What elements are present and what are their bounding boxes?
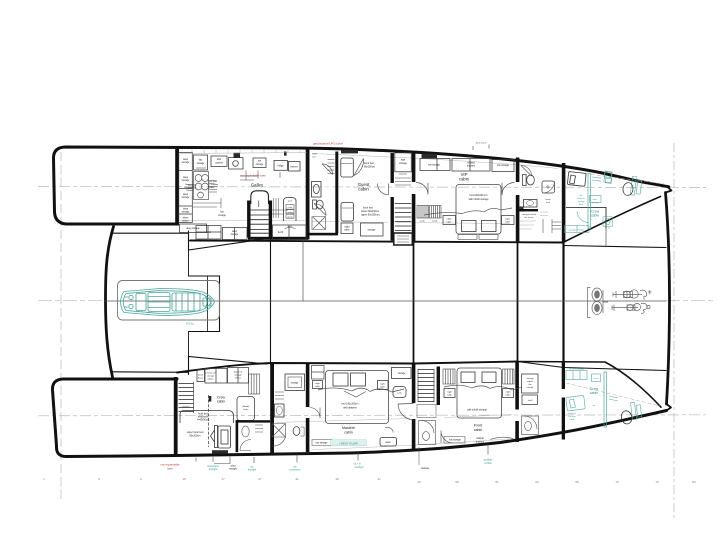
svg-text:wardr.: wardr. [432,220,438,223]
svg-text:storage: storage [256,163,264,166]
svg-text:table: table [447,221,453,224]
svg-text:27: 27 [258,477,262,481]
svg-text:storage behind: storage behind [522,213,537,216]
svg-text:mattress: mattress [577,197,586,200]
svg-text:storage: storage [291,382,299,385]
svg-text:56: 56 [575,480,579,484]
svg-text:seats: seats [243,408,249,411]
svg-text:berth: berth [206,231,212,234]
svg-text:43: 43 [417,480,421,484]
svg-text:washer/storage: washer/storage [569,367,585,370]
svg-text:rational: rational [476,437,484,440]
svg-text:deep: deep [183,194,189,196]
svg-text:towel: towel [545,198,551,201]
svg-text:table: table [506,394,512,397]
svg-text:headroom: headroom [198,416,208,419]
svg-text:drawers: drawers [476,440,485,443]
svg-text:deep: deep [232,231,238,233]
svg-text:night: night [447,391,452,394]
svg-text:table: table [345,229,351,232]
svg-text:low storage: low storage [316,442,328,445]
svg-text:deep: deep [183,177,189,179]
svg-text:instead: instead [467,162,475,165]
svg-text:Galley: Galley [251,183,264,188]
svg-text:storage: storage [182,196,190,199]
svg-text:high: high [401,160,406,162]
svg-text:41: 41 [295,477,299,481]
svg-text:chart: chart [594,377,599,380]
svg-text:washing: washing [188,185,197,187]
svg-text:51: 51 [495,480,499,484]
svg-text:shore: shore [183,217,189,220]
svg-text:storage: storage [182,161,190,164]
svg-text:headboard: headboard [498,440,509,443]
svg-text:unit: unit [312,156,316,159]
svg-text:overlight: overlight [354,466,363,469]
svg-text:storage: storage [577,200,585,203]
svg-text:58: 58 [455,480,459,484]
svg-text:inbuilt: inbuilt [527,380,533,383]
svg-text:storage: storage [197,162,205,165]
svg-text:power: power [182,220,188,223]
svg-text:deep storage: deep storage [186,227,200,230]
svg-text:upper 80x190cm): upper 80x190cm) [361,214,380,217]
svg-text:with drawers: with drawers [343,406,357,409]
svg-text:64: 64 [535,480,539,484]
svg-text:Front: Front [474,424,482,428]
svg-text:+HEAT PUMP: +HEAT PUMP [339,441,358,445]
svg-text:night: night [380,383,385,386]
svg-text:800 kg: 800 kg [186,322,194,326]
svg-text:cabin: cabin [569,419,575,421]
svg-text:mattress: mattress [568,412,577,415]
svg-text:machine: machine [188,188,197,190]
svg-text:cracker: cracker [215,162,223,165]
svg-text:non expandable: non expandable [160,463,180,467]
svg-text:90x200cm: 90x200cm [189,435,200,438]
svg-text:pantry: pantry [592,201,599,204]
svg-text:bed 160x200cm: bed 160x200cm [341,403,358,406]
svg-text:storage: storage [526,377,534,380]
svg-text:low storage: low storage [497,164,509,167]
svg-text:cabin: cabin [358,187,369,192]
svg-text:above: above [208,379,215,381]
svg-text:desk: desk [385,441,391,444]
svg-text:sink+: sink+ [592,199,598,201]
svg-text:storage: storage [207,375,215,378]
svg-text:fridge: fridge [278,165,285,168]
svg-text:shelves: shelves [182,406,190,408]
svg-text:Mastere: Mastere [342,426,355,430]
svg-text:drawers: drawers [467,165,476,168]
svg-text:holding: holding [287,212,293,214]
svg-text:wardr.: wardr. [420,220,426,223]
svg-text:cabin: cabin [474,428,483,432]
svg-text:shelf: shelf [528,400,533,402]
svg-text:wing: wing [231,466,236,468]
svg-text:bunk bed: bunk bed [198,414,208,416]
svg-text:the mirror: the mirror [524,216,534,219]
svg-text:footlight: footlight [248,469,257,472]
svg-text:shelf: shelf [312,154,317,156]
svg-text:under: under [209,186,215,189]
svg-text:dish: dish [217,159,222,161]
svg-text:storage: storage [182,211,190,214]
svg-text:70: 70 [615,480,619,484]
svg-text:low storage: low storage [449,439,461,442]
svg-text:80x190cm: 80x190cm [364,166,375,169]
svg-text:night: night [345,226,350,229]
svg-text:with inbuilt storage: with inbuilt storage [467,409,487,412]
svg-text:+ oven: + oven [209,184,216,186]
svg-text:navlight: navlight [229,468,237,471]
svg-text:low: low [220,212,224,214]
svg-text:berth: berth [288,225,293,228]
svg-text:gas hob: gas hob [209,181,217,183]
svg-text:table: table [447,394,453,397]
svg-text:footlight: footlight [209,468,218,471]
svg-text:cabin: cabin [459,177,470,182]
svg-text:basin: basin [198,378,204,380]
svg-text:cabin: cabin [217,400,225,404]
svg-text:gas/propane/LPG locker: gas/propane/LPG locker [313,142,343,146]
svg-text:interior: interior [527,386,534,389]
svg-text:storage: storage [218,214,226,217]
svg-text:wash: wash [198,375,204,377]
svg-text:table: table [380,386,386,389]
svg-text:4x: 4x [377,477,381,481]
svg-text:cabin: cabin [344,431,353,435]
svg-text:H=85/90cm: H=85/90cm [197,420,209,422]
svg-text:cupb.: cupb. [315,383,321,385]
svg-text:low storage: low storage [428,164,440,167]
svg-text:storage: storage [568,415,576,418]
svg-text:table: table [505,221,511,224]
svg-text:storage: storage [182,179,190,182]
svg-text:(Band): (Band) [242,406,249,408]
svg-text:cabin: cabin [590,391,599,395]
svg-text:table: table [315,385,321,388]
svg-text:storage: storage [231,233,239,236]
svg-text:freezer: freezer [290,166,298,169]
svg-text:storage: storage [399,162,407,165]
svg-text:deep: deep [183,209,189,211]
svg-text:night: night [447,218,452,221]
svg-text:deep: deep [183,159,189,161]
svg-text:17: 17 [221,477,225,481]
svg-text:cockpit: cockpit [484,462,492,465]
svg-text:72: 72 [655,480,659,484]
svg-text:84: 84 [692,480,696,484]
svg-text:cabin: cabin [591,214,600,218]
svg-text:berth: berth [278,231,284,234]
svg-text:night: night [505,218,510,221]
svg-text:group: group [287,217,293,219]
svg-text:with inbuilt storage: with inbuilt storage [469,198,489,201]
svg-text:form: form [579,203,584,206]
svg-text:case: case [167,468,173,471]
svg-text:depot of: depot of [234,371,242,374]
svg-text:stairway: stairway [421,467,430,470]
svg-text:non expandable vase: non expandable vase [240,174,266,178]
svg-text:storage: storage [398,372,406,375]
svg-text:storage+storage: storage+storage [569,228,586,231]
svg-text:10: 10 [335,477,339,481]
svg-text:storage: storage [368,229,376,232]
svg-text:bed 180x200 cm: bed 180x200 cm [470,194,488,197]
svg-text:deck hatch: deck hatch [476,142,487,145]
svg-text:above: above [235,378,242,380]
svg-text:counter w/: counter w/ [205,372,215,375]
svg-text:storage: storage [234,374,242,377]
svg-text:condenser: condenser [289,469,300,472]
svg-text:night: night [506,391,511,394]
svg-text:pouf: pouf [288,201,292,203]
svg-text:15: 15 [182,477,186,481]
